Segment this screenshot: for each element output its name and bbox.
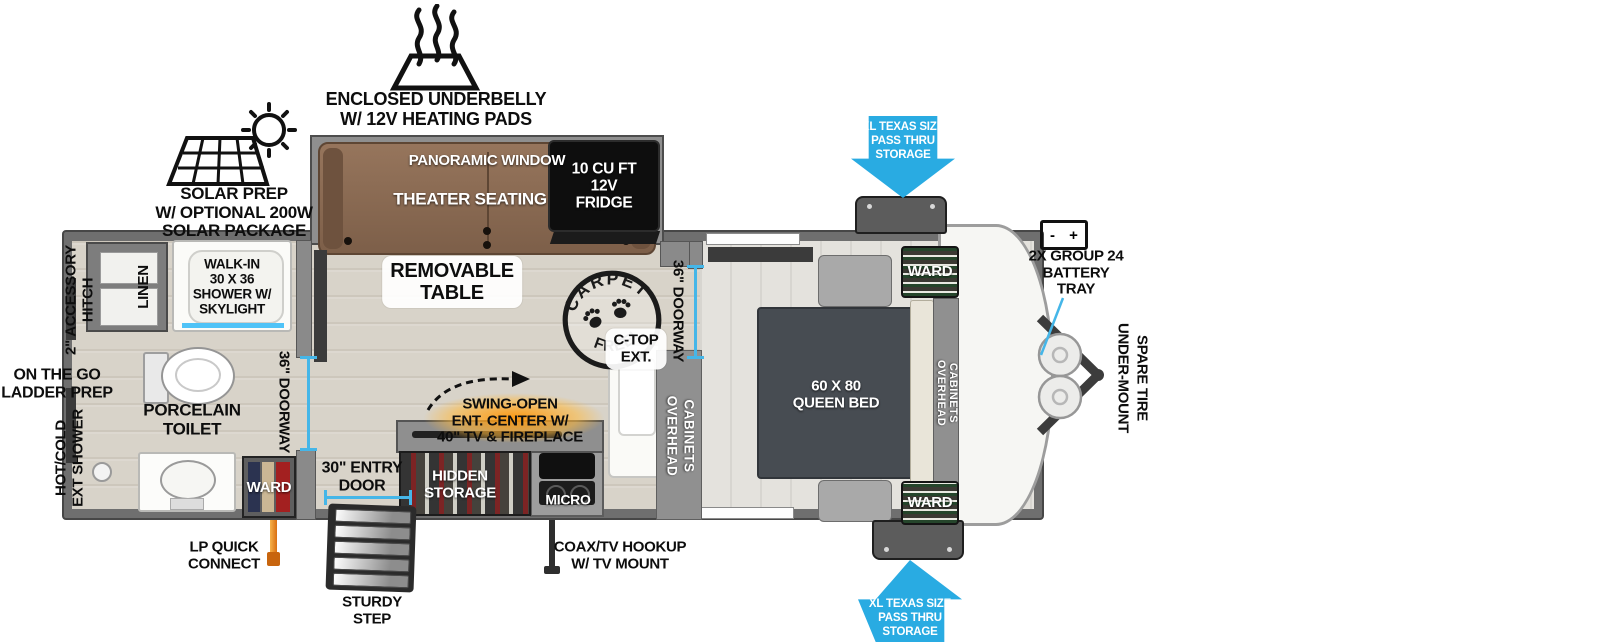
sturdy-step-label-2: STEP bbox=[342, 611, 402, 628]
ward-bottom-label: WARD bbox=[908, 495, 953, 512]
toilet-label-2: TOILET bbox=[143, 420, 240, 439]
panoramic-window-label: PANORAMIC WINDOW bbox=[409, 153, 566, 170]
pass-thru-box-top bbox=[855, 196, 947, 234]
sun-solar-icon bbox=[165, 96, 305, 192]
measure-tick bbox=[687, 265, 704, 268]
window-top bbox=[706, 233, 800, 245]
bath-wall-upper bbox=[296, 240, 312, 358]
accessory-hitch-label-1: 2" ACCESSORY bbox=[64, 245, 81, 355]
tv-wall-panel bbox=[314, 250, 327, 362]
measure-line-entry-door bbox=[326, 496, 410, 499]
floorplan-canvas: PANORAMIC WINDOW THEATER SEATING 10 CU F… bbox=[0, 0, 1600, 643]
accessory-hitch-label-2: HITCH bbox=[80, 245, 97, 355]
ctop-ext-label-2: EXT. bbox=[614, 349, 659, 366]
ctop-ext-label-1: C-TOP bbox=[614, 333, 659, 350]
ext-shower-port-icon bbox=[92, 462, 112, 482]
pass-thru-box-bottom bbox=[872, 520, 964, 560]
bath-vanity bbox=[138, 452, 236, 512]
pass-thru-top-label-2: PASS THRU bbox=[851, 135, 955, 149]
coax-label-1: COAX/TV HOOKUP bbox=[554, 540, 686, 557]
removable-table-label-1: REMOVABLE bbox=[390, 260, 514, 282]
coax-label-2: W/ TV MOUNT bbox=[554, 556, 686, 573]
step-tread bbox=[333, 573, 409, 589]
couch-button bbox=[483, 241, 491, 249]
bath-sink bbox=[160, 460, 216, 500]
ext-shower-label-2: EXT SHOWER bbox=[70, 409, 87, 507]
swing-open-label-3: 40" TV & FIREPLACE bbox=[437, 429, 583, 446]
bed-type-label: QUEEN BED bbox=[793, 395, 879, 412]
measure-line-bedroom-doorway bbox=[694, 267, 697, 358]
ext-shower-label-1: HOT/COLD bbox=[54, 409, 71, 507]
screw bbox=[930, 204, 935, 209]
entry-door-label-2: DOOR bbox=[322, 477, 403, 495]
ladder-prep-label-2: LADDER PREP bbox=[1, 384, 112, 402]
toilet-label-1: PORCELAIN bbox=[143, 401, 240, 420]
couch-button bbox=[483, 227, 491, 235]
nightstand-bottom bbox=[818, 480, 892, 522]
microwave bbox=[539, 453, 595, 479]
shower-label-3: SHOWER W/ bbox=[193, 287, 271, 302]
linen-closet bbox=[86, 242, 168, 332]
pass-thru-arrow-bottom: XL TEXAS SIZE PASS THRU STORAGE bbox=[858, 560, 962, 642]
toilet-icon bbox=[161, 347, 235, 405]
step-tread bbox=[334, 541, 410, 557]
linen-label: LINEN bbox=[136, 265, 153, 309]
heating-pad-icon bbox=[385, 4, 485, 92]
shower-label-4: SKYLIGHT bbox=[193, 302, 271, 317]
shower-glass bbox=[182, 323, 284, 328]
bed-size-label: 60 X 80 bbox=[793, 379, 879, 396]
step-tread bbox=[333, 557, 409, 573]
sturdy-step-label-1: STURDY bbox=[342, 595, 402, 612]
fridge-shadow bbox=[550, 231, 660, 244]
entry-steps bbox=[326, 503, 417, 592]
bedroom-doorway-label: 36" DOORWAY bbox=[669, 260, 686, 362]
battery-label-1: 2X GROUP 24 bbox=[1029, 248, 1124, 265]
measure-tick bbox=[409, 490, 412, 505]
entry-door-label-1: 30" ENTRY bbox=[322, 459, 403, 477]
measure-line-bath-doorway bbox=[307, 358, 310, 450]
bath-doorway-label: 36" DOORWAY bbox=[275, 351, 292, 453]
spare-tire-label-2: SPARE TIRE bbox=[1133, 335, 1150, 421]
screw bbox=[867, 204, 872, 209]
solar-label-1: SOLAR PREP bbox=[155, 185, 312, 204]
shower-label-2: 30 X 36 bbox=[193, 272, 271, 287]
pass-thru-top-label-1: XL TEXAS SIZE bbox=[851, 121, 955, 135]
lp-connect-label-1: LP QUICK bbox=[188, 540, 260, 557]
shower-label-1: WALK-IN bbox=[193, 257, 271, 272]
step-tread bbox=[334, 525, 410, 541]
lp-connect-label-2: CONNECT bbox=[188, 556, 260, 573]
battery-label-3: TRAY bbox=[1029, 281, 1124, 298]
nightstand-top bbox=[818, 255, 892, 307]
measure-tick bbox=[300, 448, 317, 451]
micro-label: MICRO bbox=[545, 492, 590, 507]
bath-wall-lower bbox=[296, 450, 316, 520]
battery-icon: - + bbox=[1040, 220, 1088, 250]
removable-table-label-2: TABLE bbox=[390, 282, 514, 304]
bedroom-bench bbox=[708, 247, 813, 262]
pass-thru-top-label-3: STORAGE bbox=[851, 149, 955, 163]
fridge-label-2: 12V bbox=[572, 177, 637, 194]
pass-thru-bottom-label-3: STORAGE bbox=[858, 626, 962, 640]
battery-label-2: BATTERY bbox=[1029, 265, 1124, 282]
fridge-label-3: FRIDGE bbox=[572, 195, 637, 212]
soap-dish bbox=[170, 498, 204, 510]
pass-thru-bottom-label-2: PASS THRU bbox=[858, 612, 962, 626]
step-tread bbox=[335, 509, 411, 525]
window-bottom bbox=[700, 507, 794, 519]
spare-tire-label-1: UNDER-MOUNT bbox=[1114, 323, 1131, 433]
bedroom-overhead-cabinets-label-1: OVERHEAD bbox=[935, 360, 947, 426]
pass-thru-arrow-top: XL TEXAS SIZE PASS THRU STORAGE bbox=[851, 116, 955, 198]
bedroom-overhead-cabinets-label-2: CABINETS bbox=[947, 363, 959, 423]
hidden-storage-label-1: HIDDEN bbox=[424, 469, 496, 486]
measure-tick bbox=[687, 356, 704, 359]
solar-label-2: W/ OPTIONAL 200W bbox=[155, 204, 312, 223]
bath-ward-label: WARD bbox=[247, 480, 292, 497]
swing-open-label-2: ENT. CENTER W/ bbox=[437, 413, 583, 430]
couch-button bbox=[344, 237, 352, 245]
measure-tick bbox=[300, 356, 317, 359]
underbelly-label-2: W/ 12V HEATING PADS bbox=[326, 110, 547, 130]
ward-top-label: WARD bbox=[908, 264, 953, 281]
battery-minus: - bbox=[1050, 227, 1055, 244]
screw bbox=[884, 547, 889, 552]
pass-thru-bottom-label-1: XL TEXAS SIZE bbox=[858, 598, 962, 612]
swing-open-label-1: SWING-OPEN bbox=[437, 396, 583, 413]
theater-seating-label: THEATER SEATING bbox=[393, 191, 547, 210]
headboard bbox=[910, 300, 934, 488]
kitchen-overhead-cabinets-label-2: CABINETS bbox=[681, 399, 696, 472]
ladder-prep-label-1: ON THE GO bbox=[1, 366, 112, 384]
kitchen-overhead-cabinets-label-1: OVERHEAD bbox=[664, 396, 679, 477]
hidden-storage-label-2: STORAGE bbox=[424, 485, 496, 502]
couch-arm-left bbox=[323, 148, 343, 249]
screw bbox=[947, 547, 952, 552]
lp-nozzle bbox=[267, 552, 280, 566]
solar-label-3: SOLAR PACKAGE bbox=[155, 222, 312, 241]
underbelly-label-1: ENCLOSED UNDERBELLY bbox=[326, 90, 547, 110]
fridge-label-1: 10 CU FT bbox=[572, 160, 637, 177]
battery-plus: + bbox=[1069, 227, 1078, 244]
